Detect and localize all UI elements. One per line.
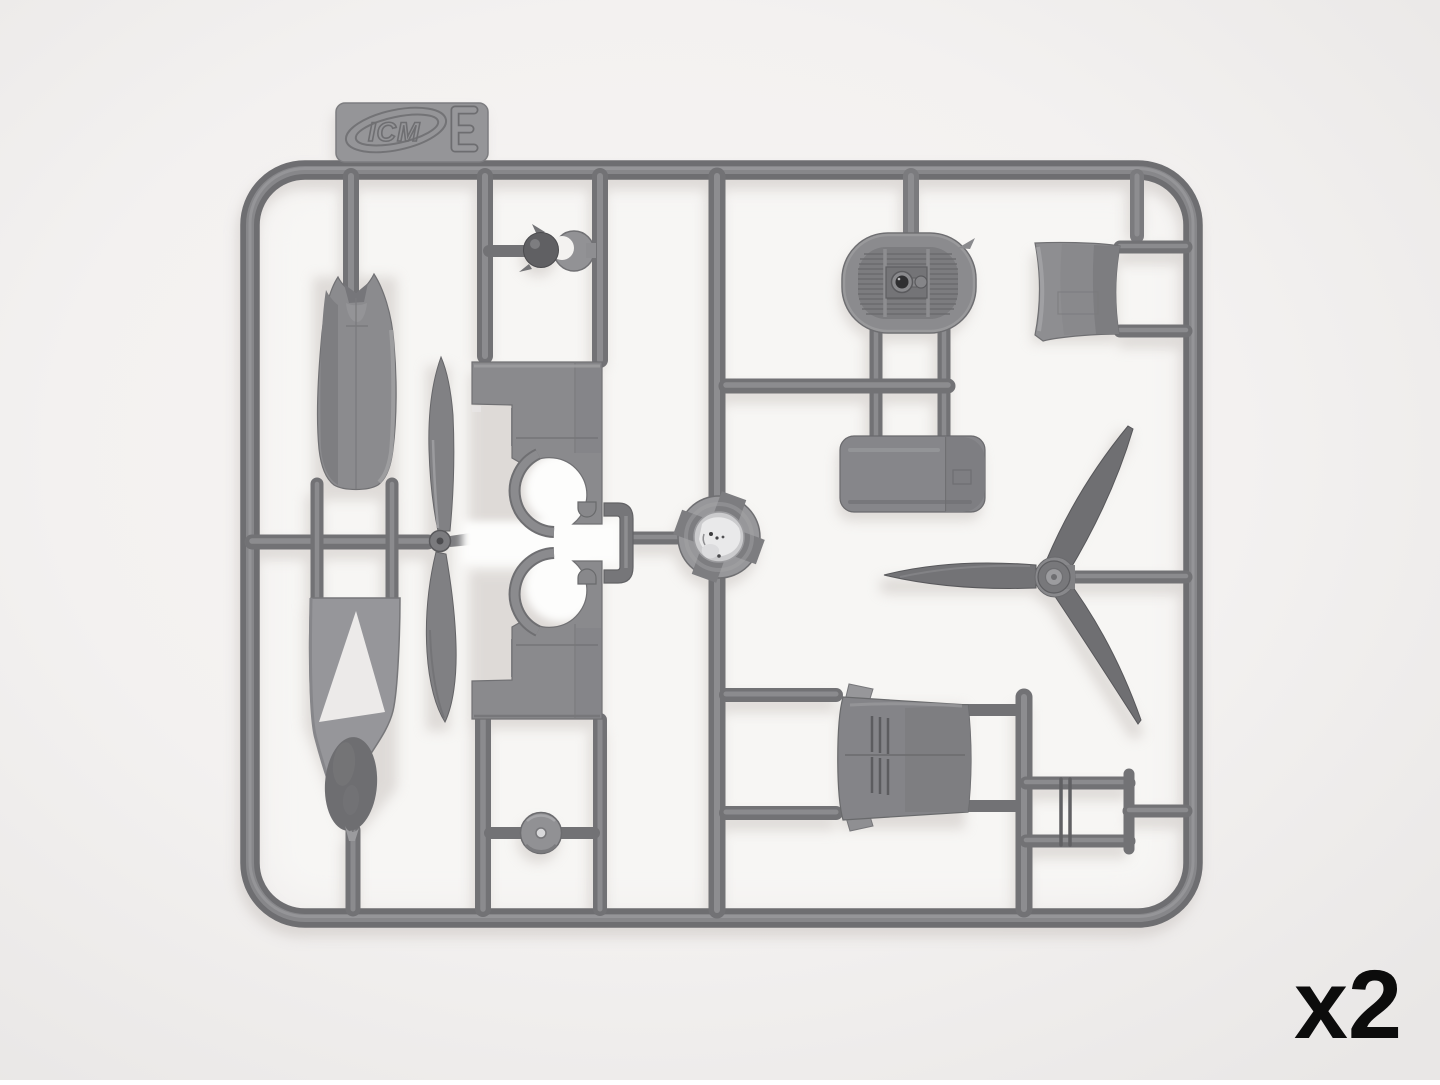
svg-text:ICM: ICM [368, 117, 421, 147]
svg-text:x2: x2 [1294, 950, 1402, 1059]
